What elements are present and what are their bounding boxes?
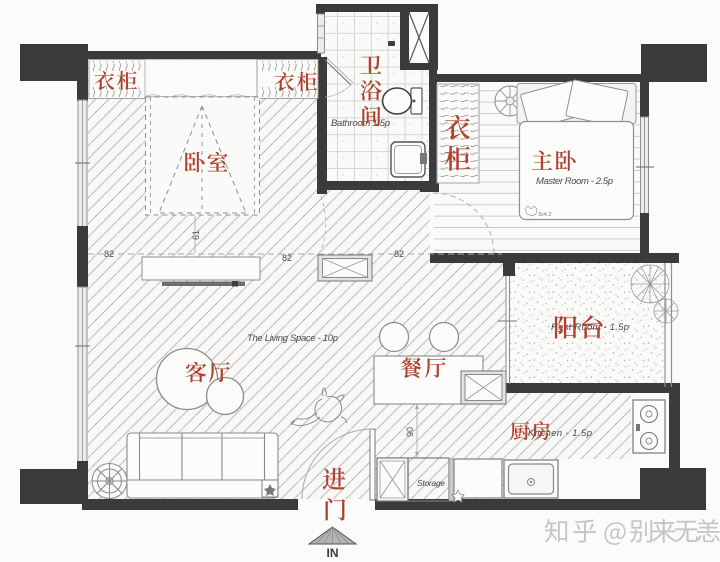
svg-text:IN: IN <box>327 546 339 560</box>
svg-text:82: 82 <box>394 249 404 259</box>
svg-text:Kitchen - 1.5p: Kitchen - 1.5p <box>528 428 592 439</box>
svg-text:Bathroom 1.5p: Bathroom 1.5p <box>331 118 390 129</box>
svg-text:82: 82 <box>282 253 292 263</box>
svg-text:The Living Space - 10p: The Living Space - 10p <box>247 333 338 344</box>
svg-text:61: 61 <box>191 230 201 240</box>
svg-text:Storage: Storage <box>417 478 445 488</box>
svg-text:90: 90 <box>405 427 415 437</box>
svg-text:3x4.2: 3x4.2 <box>538 212 551 218</box>
svg-text:Master Room - 2.5p: Master Room - 2.5p <box>536 176 613 187</box>
svg-text:82: 82 <box>104 249 114 259</box>
